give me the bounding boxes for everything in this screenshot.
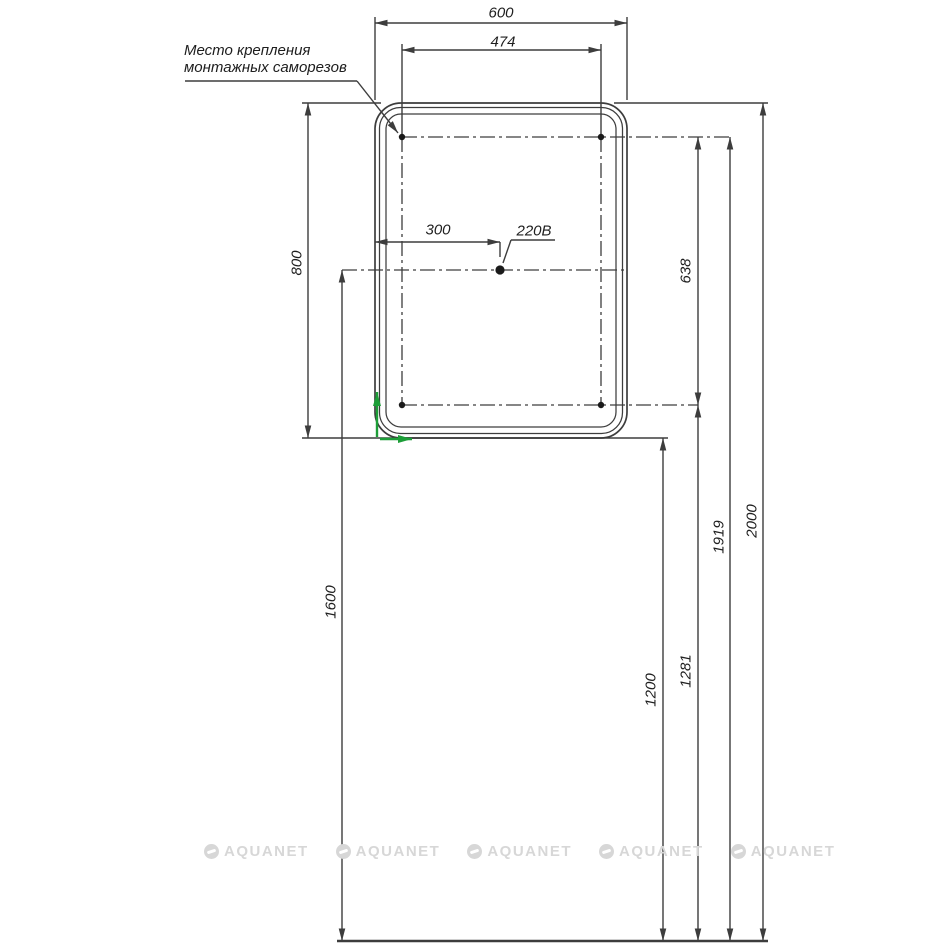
centerlines — [342, 137, 730, 405]
dim-screw-spacing-h: 474 — [490, 34, 515, 51]
dim-mirror-top-height: 2000 — [744, 504, 761, 537]
watermark-item: AQUANET — [731, 843, 836, 860]
dim-screw-spacing-v: 638 — [678, 258, 695, 283]
dim-mirror-height: 800 — [289, 250, 306, 275]
watermark-text: AQUANET — [487, 843, 572, 860]
dim-mirror-bottom-height: 1200 — [643, 673, 660, 706]
drawing-linework — [0, 0, 950, 950]
dimension-lines — [308, 23, 763, 941]
watermark-text: AQUANET — [751, 843, 836, 860]
mirror-installation-drawing: Место крепления монтажных саморезов 600 … — [0, 0, 950, 950]
watermark-text: AQUANET — [224, 843, 309, 860]
watermark-item: AQUANET — [467, 843, 572, 860]
power-voltage-label: 220В — [516, 223, 551, 240]
watermark-item: AQUANET — [336, 843, 441, 860]
leader-lines — [185, 81, 555, 263]
callout-line-1: Место крепления — [184, 42, 347, 59]
aquanet-logo-icon — [336, 844, 351, 859]
aquanet-logo-icon — [599, 844, 614, 859]
mounting-callout: Место крепления монтажных саморезов — [184, 42, 347, 76]
dim-bottom-screws-height: 1281 — [678, 654, 695, 687]
callout-line-2: монтажных саморезов — [184, 59, 347, 76]
watermark-text: AQUANET — [356, 843, 441, 860]
watermark-item: AQUANET — [599, 843, 704, 860]
watermark-item: AQUANET — [204, 843, 309, 860]
aquanet-logo-icon — [731, 844, 746, 859]
power-point-dot — [495, 265, 504, 274]
origin-axes-arrows — [377, 392, 412, 439]
aquanet-logo-icon — [204, 844, 219, 859]
dim-overall-width: 600 — [488, 5, 513, 22]
aquanet-logo-icon — [467, 844, 482, 859]
dim-socket-offset-x: 300 — [425, 222, 450, 239]
dim-socket-height: 1600 — [323, 585, 340, 618]
watermark-text: AQUANET — [619, 843, 704, 860]
dim-top-screws-height: 1919 — [711, 520, 728, 553]
watermark-row: AQUANET AQUANET AQUANET AQUANET AQUANET — [204, 843, 835, 860]
